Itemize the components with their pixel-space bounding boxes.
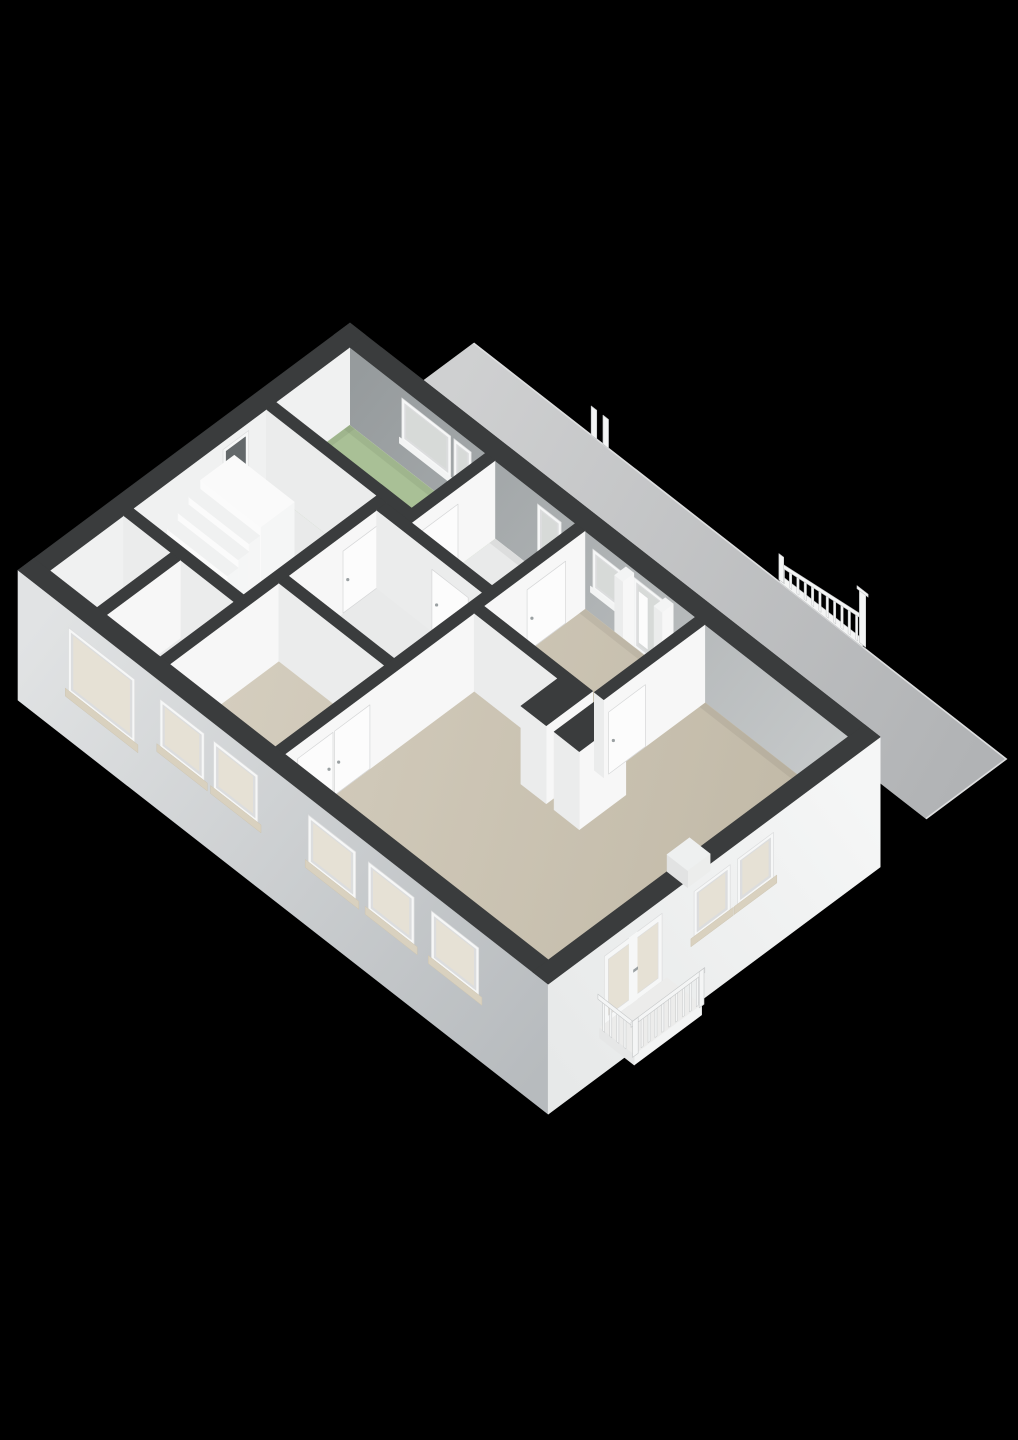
hall-door-handle bbox=[346, 578, 349, 581]
kitchen-door-handle bbox=[612, 739, 615, 742]
terrace-post-1 bbox=[603, 415, 609, 448]
floorplan-scene bbox=[0, 0, 1018, 1440]
rail-post-end bbox=[859, 590, 865, 647]
balcony-baluster-7 bbox=[648, 1013, 650, 1042]
balcony-post-right bbox=[633, 1017, 639, 1057]
terrace-door-leaf bbox=[639, 591, 649, 650]
balcony-side-baluster-1 bbox=[610, 1008, 612, 1038]
balcony-baluster-4 bbox=[669, 998, 671, 1028]
midroom-door-handle bbox=[435, 603, 438, 606]
rail-baluster-10 bbox=[856, 613, 858, 641]
double-door-handle-left bbox=[337, 761, 340, 764]
rail-baluster-7 bbox=[834, 599, 836, 624]
balcony-baluster-8 bbox=[641, 1018, 643, 1048]
kitchen-hall-door-handle bbox=[530, 617, 533, 620]
double-door-handle-right bbox=[327, 768, 330, 771]
balcony-baluster-6 bbox=[655, 1008, 657, 1038]
balcony-side-baluster-2 bbox=[617, 1014, 619, 1044]
balcony-side-baluster-0 bbox=[603, 1003, 605, 1033]
kitchen-wall-se-face-sw bbox=[594, 692, 603, 777]
balcony-baluster-5 bbox=[662, 1003, 664, 1033]
rail-baluster-9 bbox=[848, 608, 850, 635]
rail-post-start bbox=[779, 554, 784, 584]
balcony-baluster-0 bbox=[696, 977, 698, 1007]
floorplan-3d-render bbox=[0, 0, 1018, 1440]
balcony-baluster-3 bbox=[676, 993, 678, 1023]
balcony-baluster-1 bbox=[689, 982, 691, 1012]
balcony-baluster-2 bbox=[683, 988, 685, 1018]
step-5-side bbox=[249, 536, 260, 592]
rail-baluster-8 bbox=[841, 603, 843, 629]
terrace-post-0 bbox=[591, 406, 597, 439]
balcony-post-left bbox=[699, 968, 704, 1008]
balcony-side-baluster-3 bbox=[624, 1019, 626, 1049]
